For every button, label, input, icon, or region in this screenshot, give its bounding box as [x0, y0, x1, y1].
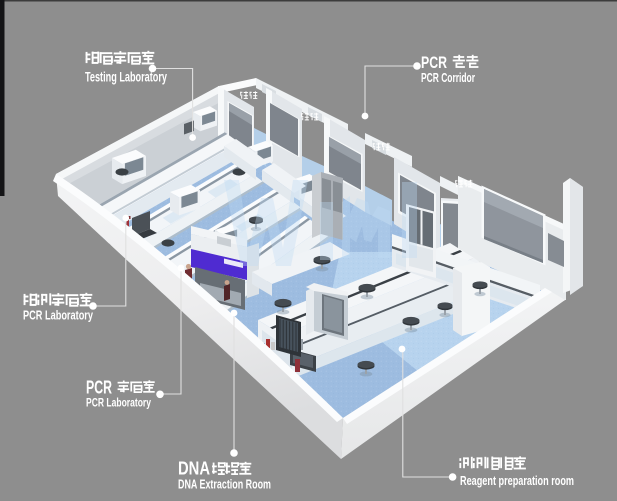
- svg-text:PCR Corridor: PCR Corridor: [421, 71, 475, 85]
- svg-text:PCR Laboratory: PCR Laboratory: [23, 309, 93, 323]
- svg-text:PCR: PCR: [421, 54, 447, 72]
- svg-text:DNA: DNA: [178, 459, 210, 479]
- svg-text:Testing Laboratory: Testing Laboratory: [85, 70, 167, 85]
- svg-text:PCR: PCR: [86, 378, 112, 398]
- svg-text:PCR Laboratory: PCR Laboratory: [86, 396, 151, 410]
- svg-text:Reagent preparation room: Reagent preparation room: [460, 474, 574, 488]
- svg-text:DNA Extraction Room: DNA Extraction Room: [178, 478, 271, 492]
